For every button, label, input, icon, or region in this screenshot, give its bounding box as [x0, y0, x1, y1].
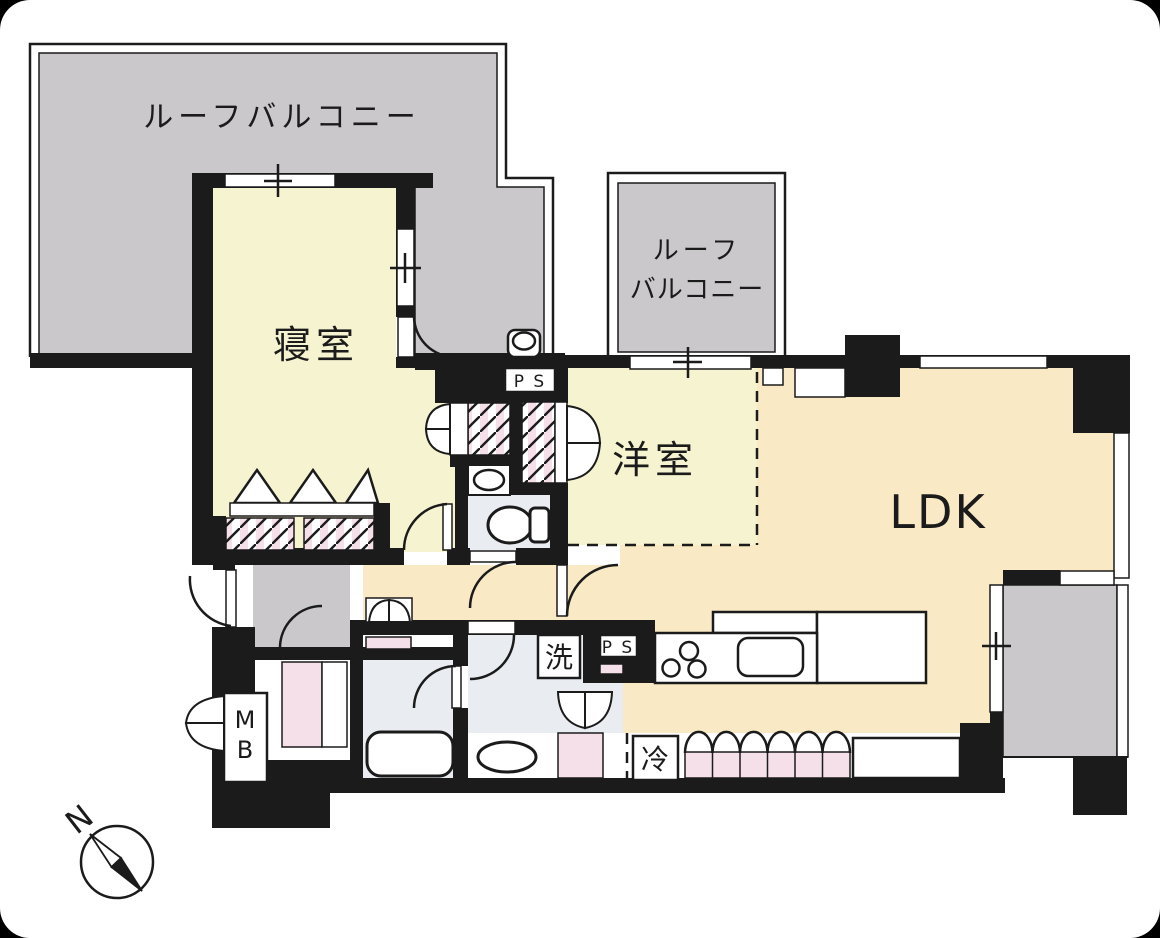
label-roof-balcony2-line1: ルーフ — [653, 236, 741, 266]
shoe-cabinet-pink — [282, 662, 322, 747]
washbasin — [478, 742, 536, 772]
washroom-storage — [558, 692, 612, 778]
shoe-cabinet-white — [322, 662, 347, 747]
label-western-room: 洋室 — [612, 438, 698, 482]
label-ps1: P S — [514, 372, 546, 392]
label-bedroom: 寝室 — [273, 323, 359, 367]
balcony-southeast — [1003, 585, 1128, 757]
south-cabinet — [853, 738, 960, 778]
label-meter-box-m: M — [235, 706, 256, 734]
floor-plan-drawing: ルーフバルコニー ルーフ バルコニー 寝室 洋室 LDK P S P S 洗 冷… — [0, 0, 1160, 938]
label-ldk: LDK — [889, 485, 986, 539]
floor-plan-page: ルーフバルコニー ルーフ バルコニー 寝室 洋室 LDK P S P S 洗 冷… — [0, 0, 1160, 938]
water-heater-pipe — [508, 330, 540, 357]
roof-balcony-2 — [608, 173, 785, 360]
bathtub — [367, 732, 453, 776]
compass — [81, 826, 153, 898]
entrance-floor — [253, 565, 350, 647]
label-roof-balcony-main: ルーフバルコニー — [143, 100, 421, 135]
label-washer: 洗 — [545, 641, 573, 674]
label-meter-box-b: B — [237, 736, 253, 764]
pipe-space-2-shelf — [600, 664, 623, 674]
label-ps2: P S — [602, 638, 634, 658]
label-fridge: 冷 — [641, 743, 669, 776]
label-roof-balcony2-line2: バルコニー — [630, 275, 764, 305]
south-closet-folding — [685, 732, 850, 778]
compass-needle-south — [112, 858, 143, 891]
